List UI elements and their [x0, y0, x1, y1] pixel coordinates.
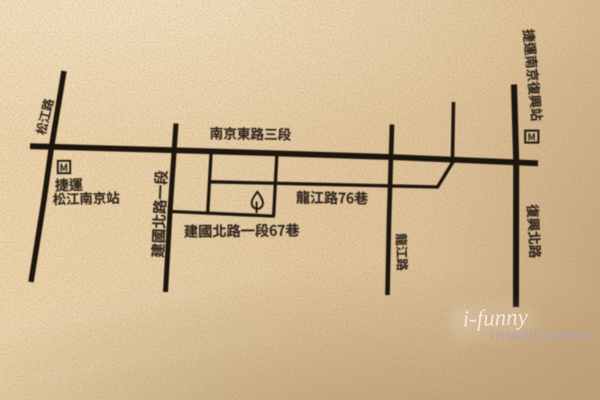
- svg-text:vivian010.pixnet.net: vivian010.pixnet.net: [489, 327, 595, 341]
